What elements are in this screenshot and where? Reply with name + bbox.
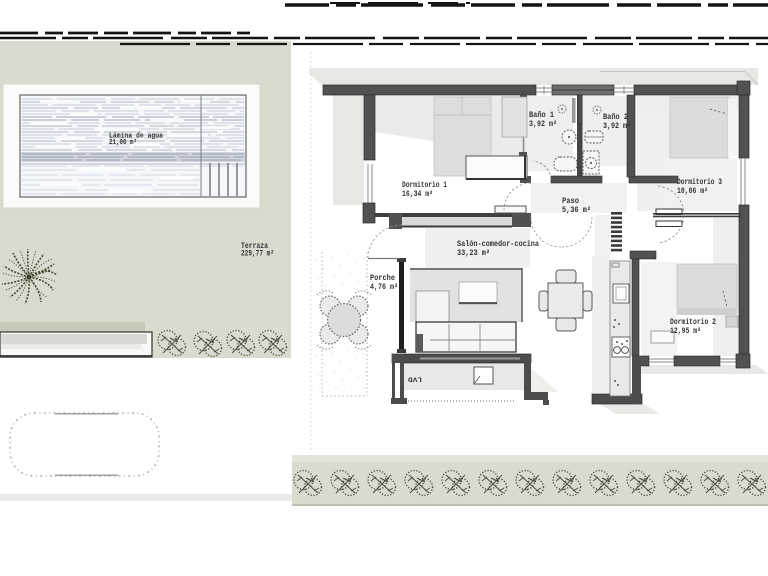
svg-text:Dormitorio 2: Dormitorio 2 xyxy=(670,318,716,327)
svg-text:3,92 m²: 3,92 m² xyxy=(529,120,557,129)
svg-text:Paso: Paso xyxy=(562,197,579,206)
svg-text:229,77 m²: 229,77 m² xyxy=(241,250,274,259)
svg-text:3,92 m²: 3,92 m² xyxy=(603,122,631,131)
svg-text:Baño 1: Baño 1 xyxy=(529,111,554,120)
svg-text:12,95 m²: 12,95 m² xyxy=(670,327,701,336)
svg-text:5,36 m²: 5,36 m² xyxy=(562,206,591,215)
svg-text:33,23 m²: 33,23 m² xyxy=(457,249,490,258)
svg-text:16,34 m²: 16,34 m² xyxy=(402,190,433,199)
svg-text:Salón-comedor-cocina: Salón-comedor-cocina xyxy=(457,240,539,249)
svg-text:Dormitorio 1: Dormitorio 1 xyxy=(402,181,447,190)
svg-text:4,76 m²: 4,76 m² xyxy=(370,283,398,292)
svg-text:Dormitorio 3: Dormitorio 3 xyxy=(677,178,722,187)
svg-text:10,06 m²: 10,06 m² xyxy=(677,187,708,196)
svg-text:LVD: LVD xyxy=(408,376,422,383)
svg-text:Porche: Porche xyxy=(370,274,395,283)
svg-text:Baño 2: Baño 2 xyxy=(603,113,628,122)
svg-text:21,00 m²: 21,00 m² xyxy=(109,138,137,147)
